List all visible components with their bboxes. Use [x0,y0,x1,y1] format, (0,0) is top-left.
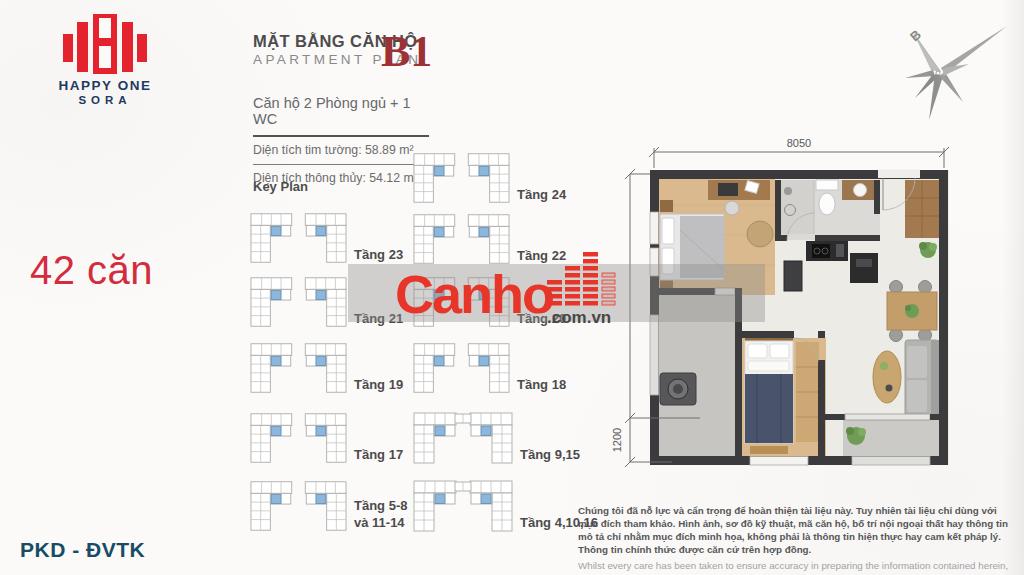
keyplan-floor-label: Tầng 24 [517,187,566,204]
keyplan-heading: Key Plan [253,179,308,194]
keyplan-mini-icon [250,212,347,264]
dim-depth-label: 1200 [611,428,623,452]
unit-count-label: 42 căn [30,248,153,293]
keyplan-floor: Tầng 24 [413,152,566,204]
plan-code: B1 [381,26,432,77]
disclaimer-vi: Chúng tôi đã nỗ lực và cẩn trọng để hoàn… [578,504,1012,557]
keyplan-mini-icon [250,480,347,532]
compass-icon: B [885,14,1015,129]
keyplan-floor-label: Tầng 17 [354,447,403,464]
keyplan-floor: Tầng 19 [250,342,403,394]
keyplan-floor: Tầng 23 [250,212,403,264]
keyplan-mini-icon [250,412,347,464]
keyplan-floor-label: Tầng 9,15 [520,447,580,464]
watermark-logo: Canho .com.vn [395,247,645,329]
disclaimer-en: Whilst every care has been taken to ensu… [578,559,1012,575]
keyplan-floor: Tầng 18 [413,342,566,394]
disclaimer: Chúng tôi đã nỗ lực và cẩn trọng để hoàn… [578,504,1012,575]
keyplan-mini-icon [413,412,513,464]
brand-logo-icon: HAPPY ONE SORA [25,8,185,108]
brand-subname: SORA [78,94,131,106]
page-edge-shading [1002,0,1024,575]
watermark-brand: Canho [395,264,553,324]
keyplan-floor: Tầng 5-8 và 11-14 [250,480,424,532]
brochure-page: HAPPY ONE SORA 42 căn PKD - ĐVTK MẶT BẰN… [0,0,1024,575]
watermark-suffix: .com.vn [547,308,611,327]
dim-width-label: 8050 [787,137,811,149]
keyplan-floor: Tầng 9,15 [413,412,580,464]
keyplan-floor-label: Tầng 18 [517,377,566,394]
sales-footer-label: PKD - ĐVTK [20,538,145,562]
spec-row-gross-area: Diện tích tim tường: 58.89 m² [253,137,429,165]
brand-name: HAPPY ONE [59,78,152,93]
spec-row-type: Căn hộ 2 Phòng ngủ + 1 WC [253,95,429,137]
compass-north-label: B [907,27,924,44]
keyplan-mini-icon [250,342,347,394]
keyplan-mini-icon [250,276,347,328]
keyplan-floor: Tầng 4,10,16 [413,480,598,532]
watermark-building-icon [547,252,615,306]
keyplan-mini-icon [413,342,510,394]
spec-table: Căn hộ 2 Phòng ngủ + 1 WC Diện tích tim … [253,95,429,192]
keyplan-floor: Tầng 17 [250,412,403,464]
keyplan-floor-label: Tầng 19 [354,377,403,394]
keyplan-mini-icon [413,152,510,204]
keyplan-mini-icon [413,480,513,532]
